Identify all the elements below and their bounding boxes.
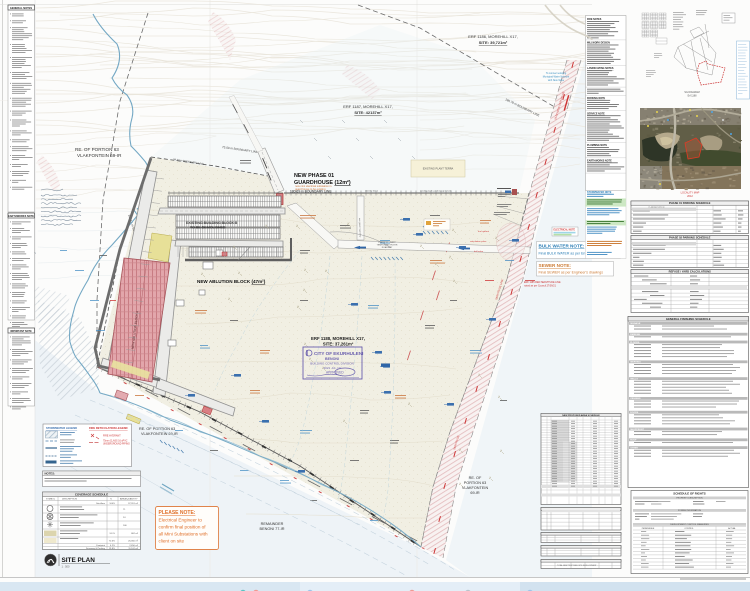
svg-text:PHASE 01 PARKING SCHEDULE: PHASE 01 PARKING SCHEDULE — [669, 201, 711, 205]
svg-text:noted as per Council 27/09/21: noted as per Council 27/09/21 — [524, 284, 557, 287]
svg-text:TOTAL NEW PROPOSED SITE DEVELO: TOTAL NEW PROPOSED SITE DEVELOPMENT — [557, 564, 597, 567]
svg-text:PLEASE NOTE:: PLEASE NOTE: — [159, 510, 196, 516]
svg-text:GENERAL FINISHING SCHEDULE: GENERAL FINISHING SCHEDULE — [666, 317, 711, 321]
svg-text:SITE: 39,721m²: SITE: 39,721m² — [479, 40, 508, 45]
svg-text:REFUSE / YARD CALCULATIONS: REFUSE / YARD CALCULATIONS — [669, 270, 711, 274]
svg-text:client on site: client on site — [159, 539, 185, 544]
svg-text:RE. OF PORTION 63: RE. OF PORTION 63 — [75, 147, 119, 152]
svg-text:EARTHWORKS NOTE: EARTHWORKS NOTE — [8, 215, 34, 218]
svg-text:reticulation valve: reticulation valve — [470, 240, 487, 243]
svg-text:19.8%: 19.8% — [109, 548, 115, 550]
svg-text:TEMPORARY FILTER: TEMPORARY FILTER — [377, 244, 398, 247]
svg-text:802 m²: 802 m² — [131, 532, 138, 535]
svg-text:COVERAGE SCHEDULE: COVERAGE SCHEDULE — [75, 493, 108, 497]
svg-text:DEVELOPMENT CONTROL MEASURES: DEVELOPMENT CONTROL MEASURES — [670, 523, 709, 526]
svg-text:PARKING NOTE: PARKING NOTE — [587, 97, 606, 100]
svg-text:SIGNAGE: SIGNAGE — [630, 322, 641, 325]
svg-text:IMPORTANT NOTE: IMPORTANT NOTE — [10, 330, 32, 333]
svg-text:BENONI 77-IR: BENONI 77-IR — [260, 527, 285, 531]
svg-text:Footprint: Footprint — [96, 544, 105, 547]
svg-text:Client's fence: Client's fence — [365, 190, 379, 193]
svg-text:AREA/QUANTITY: AREA/QUANTITY — [120, 497, 138, 500]
svg-text:NEW PHASE 01: NEW PHASE 01 — [294, 173, 334, 179]
svg-text:SEWER NOTE:: SEWER NOTE: — [539, 263, 572, 268]
svg-text:FLOORS: FLOORS — [630, 342, 640, 344]
svg-text:BULK WATER NOTE:: BULK WATER NOTE: — [539, 244, 585, 249]
svg-text:confirm final position of: confirm final position of — [159, 525, 207, 530]
svg-text:UNDERGROUND PIPING: UNDERGROUND PIPING — [103, 444, 130, 446]
svg-text:existing wall u-end (snap it o: existing wall u-end (snap it over) — [420, 190, 452, 193]
svg-text:69-IR: 69-IR — [470, 491, 480, 495]
svg-text:Driveway & Parking: Driveway & Parking — [86, 547, 106, 550]
svg-text:guard house to be existing: guard house to be existing — [295, 187, 326, 191]
svg-text:BUILDING CONTROL DIVISION: BUILDING CONTROL DIVISION — [310, 362, 354, 366]
svg-text:LANDSCAPING NOTES: LANDSCAPING NOTES — [587, 67, 614, 70]
svg-text:%: % — [110, 498, 112, 500]
svg-text:37,261 m²: 37,261 m² — [128, 502, 138, 505]
svg-text:SKIRTING: SKIRTING — [630, 362, 641, 364]
svg-text:ROADWAY: ROADWAY — [382, 246, 393, 249]
svg-text:ERF 1187, MOREHILL X17,: ERF 1187, MOREHILL X17, — [343, 104, 393, 109]
svg-text:Erf 1188: Erf 1188 — [688, 94, 698, 97]
svg-text:SITE PLAN: SITE PLAN — [62, 557, 96, 564]
svg-text:NOTES:: NOTES: — [45, 471, 56, 475]
svg-text:ELECTRICAL NOTE: ELECTRICAL NOTE — [554, 229, 576, 232]
svg-text:CEILINGS: CEILINGS — [630, 398, 641, 400]
svg-text:DOORS: DOORS — [630, 412, 639, 414]
svg-text:ZONING INFORMATION: ZONING INFORMATION — [678, 509, 702, 512]
svg-text:NEW ABLUTION BLOCK (47m²): NEW ABLUTION BLOCK (47m²) — [197, 279, 266, 284]
svg-text:26,360 m²: 26,360 m² — [128, 540, 138, 543]
svg-text:PERMISSIBLE: PERMISSIBLE — [642, 528, 655, 530]
svg-text:VLAKFONTEIN 69-IR: VLAKFONTEIN 69-IR — [77, 153, 122, 158]
svg-text:3.8 %: 3.8 % — [109, 533, 115, 535]
svg-text:2012: 2012 — [687, 194, 693, 198]
svg-text:TO BE DEMOLISHED: TO BE DEMOLISHED — [190, 226, 226, 230]
svg-text:EARTHWORKS NOTE: EARTHWORKS NOTE — [587, 159, 612, 162]
svg-text:VLAKFONTEIN: VLAKFONTEIN — [462, 486, 489, 490]
svg-text:Site Area: Site Area — [96, 502, 106, 505]
svg-text:EXISTING BUILDING BLOCK B: EXISTING BUILDING BLOCK B — [186, 221, 238, 225]
svg-text:Final SEWER as per Engineer's: Final SEWER as per Engineer's drawings — [539, 271, 604, 275]
svg-text:ERF 1186, MOREHILL X17,: ERF 1186, MOREHILL X17, — [468, 34, 518, 39]
svg-text:LOCALITY MAP: LOCALITY MAP — [681, 191, 700, 195]
svg-text:CITY OF EKURHULENI: CITY OF EKURHULENI — [314, 351, 363, 356]
svg-text:FIRE RETICULATION LEGEND: FIRE RETICULATION LEGEND — [89, 426, 128, 430]
svg-text:ball valve: ball valve — [474, 251, 484, 253]
svg-text:PLUMBING NOTE: PLUMBING NOTE — [587, 144, 607, 147]
svg-text:OTHER: OTHER — [630, 447, 638, 449]
svg-text:SITE: 37,261m²: SITE: 37,261m² — [323, 342, 354, 347]
svg-text:4.2%: 4.2% — [110, 545, 115, 547]
svg-text:RE. OF: RE. OF — [469, 476, 482, 480]
svg-text:REMAINDER: REMAINDER — [261, 522, 284, 526]
svg-text:Electrical Engineer to: Electrical Engineer to — [159, 518, 203, 523]
svg-text:VLAKFONTEIN 69-IR: VLAKFONTEIN 69-IR — [141, 432, 178, 436]
svg-text:PROPERTY DESCRIPTION: PROPERTY DESCRIPTION — [676, 498, 703, 500]
svg-text:FIRE NOTES: FIRE NOTES — [587, 18, 602, 21]
svg-text:100%: 100% — [109, 503, 115, 505]
svg-text:PORTION 63: PORTION 63 — [464, 481, 487, 485]
svg-text:GENERAL NOTES: GENERAL NOTES — [10, 6, 33, 10]
svg-text:ERF 1188, MOREHILL X17,: ERF 1188, MOREHILL X17, — [311, 336, 365, 341]
svg-text:SYMBOL: SYMBOL — [46, 498, 56, 500]
svg-text:ACTUAL: ACTUAL — [728, 527, 735, 530]
svg-text:WALLS: WALLS — [630, 377, 638, 380]
svg-text:SITE: 42137m²: SITE: 42137m² — [354, 110, 382, 115]
svg-text:CONTROL: CONTROL — [684, 528, 693, 530]
svg-text:ROOF: ROOF — [630, 440, 637, 442]
svg-text:75mm CLASS 16 uPVC: 75mm CLASS 16 uPVC — [103, 440, 128, 443]
svg-text:PHASE 02 PARKING SCHEDULE: PHASE 02 PARKING SCHEDULE — [669, 236, 711, 240]
svg-text:STORMWATER NOTE: STORMWATER NOTE — [587, 191, 612, 194]
svg-text:fire hydrant: fire hydrant — [478, 230, 489, 233]
svg-text:SERVICE NOTE: SERVICE NOTE — [587, 112, 605, 115]
svg-text:SHOPFRONT: SHOPFRONT — [630, 429, 644, 431]
svg-text:FIRE HYDRANT: FIRE HYDRANT — [103, 435, 121, 438]
svg-text:PARKING: PARKING — [630, 333, 640, 336]
svg-text:EXISTING PLANT TERRA: EXISTING PLANT TERRA — [423, 167, 454, 171]
svg-text:PHASE 01 - EAST: PHASE 01 - EAST — [378, 241, 396, 244]
svg-text:STORMWATER LEGEND: STORMWATER LEGEND — [46, 426, 77, 430]
svg-text:RE. OF PORTION 63: RE. OF PORTION 63 — [139, 427, 175, 431]
svg-text:70.6%: 70.6% — [109, 541, 115, 543]
svg-text:NEW PROPOSED AREA SCHEDULE: NEW PROPOSED AREA SCHEDULE — [562, 414, 600, 417]
svg-text:SCHEDULE OF RIGHTS: SCHEDULE OF RIGHTS — [673, 492, 706, 496]
svg-text:1 : 500: 1 : 500 — [62, 565, 70, 569]
svg-text:MILLWORK DESIGN: MILLWORK DESIGN — [587, 42, 610, 45]
svg-text:with New Valve: with New Valve — [548, 79, 565, 82]
svg-text:2,450 m²: 2,450 m² — [129, 544, 138, 547]
svg-text:DESCRIPTION: DESCRIPTION — [62, 498, 77, 500]
svg-text:11,102 m²: 11,102 m² — [128, 547, 138, 550]
svg-text:all Mini Substations with: all Mini Substations with — [159, 532, 208, 537]
svg-text:BENONI: BENONI — [325, 357, 339, 361]
